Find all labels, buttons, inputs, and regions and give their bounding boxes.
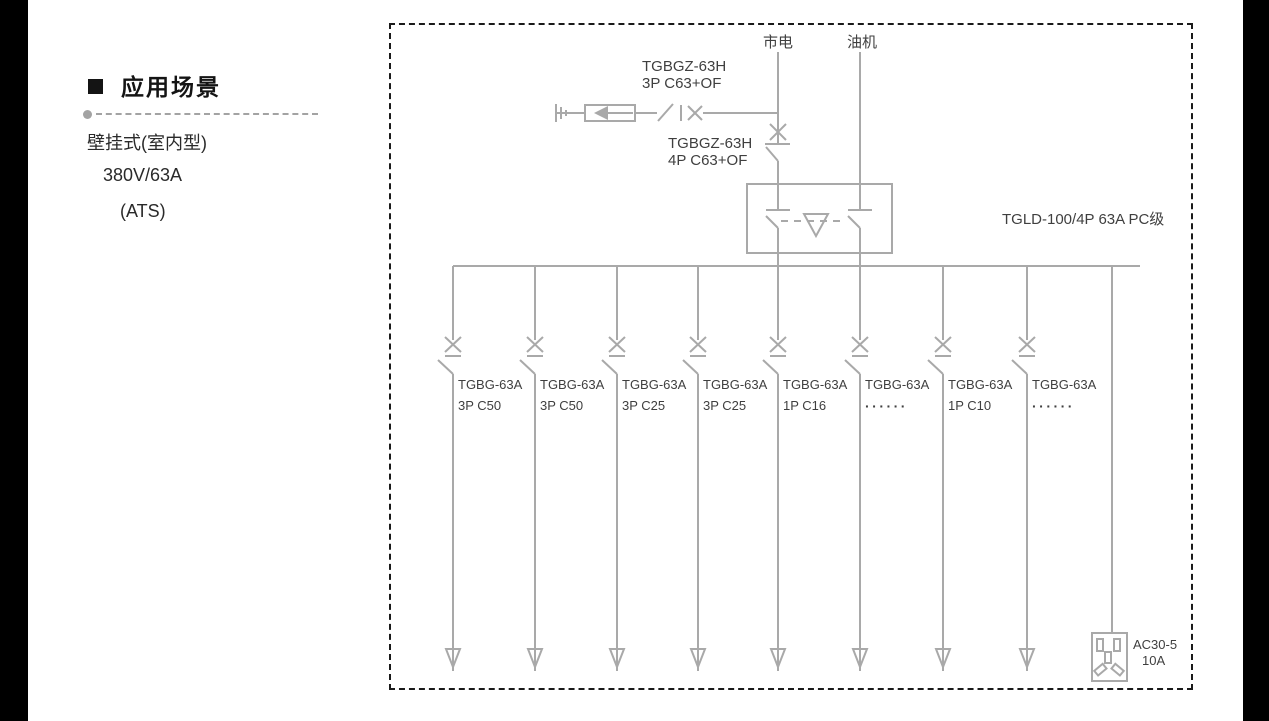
branch-circuit-4	[683, 266, 706, 671]
main-breaker-label: TGBGZ-63H 4P C63+OF	[668, 135, 752, 169]
spd-breaker-spec: 3P C63+OF	[642, 75, 726, 92]
ats-switch-box	[747, 184, 892, 266]
branch-label-3: TGBG-63A 3P C25	[622, 377, 686, 413]
socket-branch	[1092, 266, 1127, 681]
branch-label-8: TGBG-63A ······	[1032, 377, 1096, 414]
single-line-diagram	[0, 0, 1269, 721]
spd-surge-branch	[556, 104, 777, 122]
ats-triangle-icon	[804, 214, 828, 236]
spd-arrow-icon	[594, 106, 608, 120]
ats-linkage	[781, 214, 846, 236]
spd-breaker-label: TGBGZ-63H 3P C63+OF	[642, 58, 726, 92]
branch-circuit-1	[438, 266, 461, 671]
ats-switch-left	[766, 210, 790, 266]
socket-icon	[1092, 633, 1127, 681]
branch-circuit-6	[845, 266, 868, 671]
branch-circuit-7	[928, 266, 951, 671]
socket-rating-label: 10A	[1142, 653, 1165, 668]
branch-label-5: TGBG-63A 1P C16	[783, 377, 847, 413]
branch-label-4: TGBG-63A 3P C25	[703, 377, 767, 413]
mains-source-label: 市电	[756, 31, 800, 52]
branch-circuit-5	[763, 266, 786, 671]
socket-model-label: AC30-5	[1133, 637, 1177, 652]
branch-circuit-3	[602, 266, 625, 671]
branch-label-6: TGBG-63A ······	[865, 377, 929, 414]
branch-label-2: TGBG-63A 3P C50	[540, 377, 604, 413]
ats-switch-right	[848, 210, 872, 266]
spd-breaker-icon	[658, 104, 702, 121]
spd-breaker-model: TGBGZ-63H	[642, 58, 726, 75]
branch-circuit-8	[1012, 266, 1035, 671]
main-breaker-model: TGBGZ-63H	[668, 135, 752, 152]
ats-model-label: TGLD-100/4P 63A PC级	[1002, 208, 1164, 229]
branch-circuit-2	[520, 266, 543, 671]
generator-source-label: 油机	[840, 31, 884, 52]
main-breaker-spec: 4P C63+OF	[668, 152, 752, 169]
branch-label-7: TGBG-63A 1P C10	[948, 377, 1012, 413]
branch-label-1: TGBG-63A 3P C50	[458, 377, 522, 413]
mains-feed-line	[765, 52, 790, 210]
